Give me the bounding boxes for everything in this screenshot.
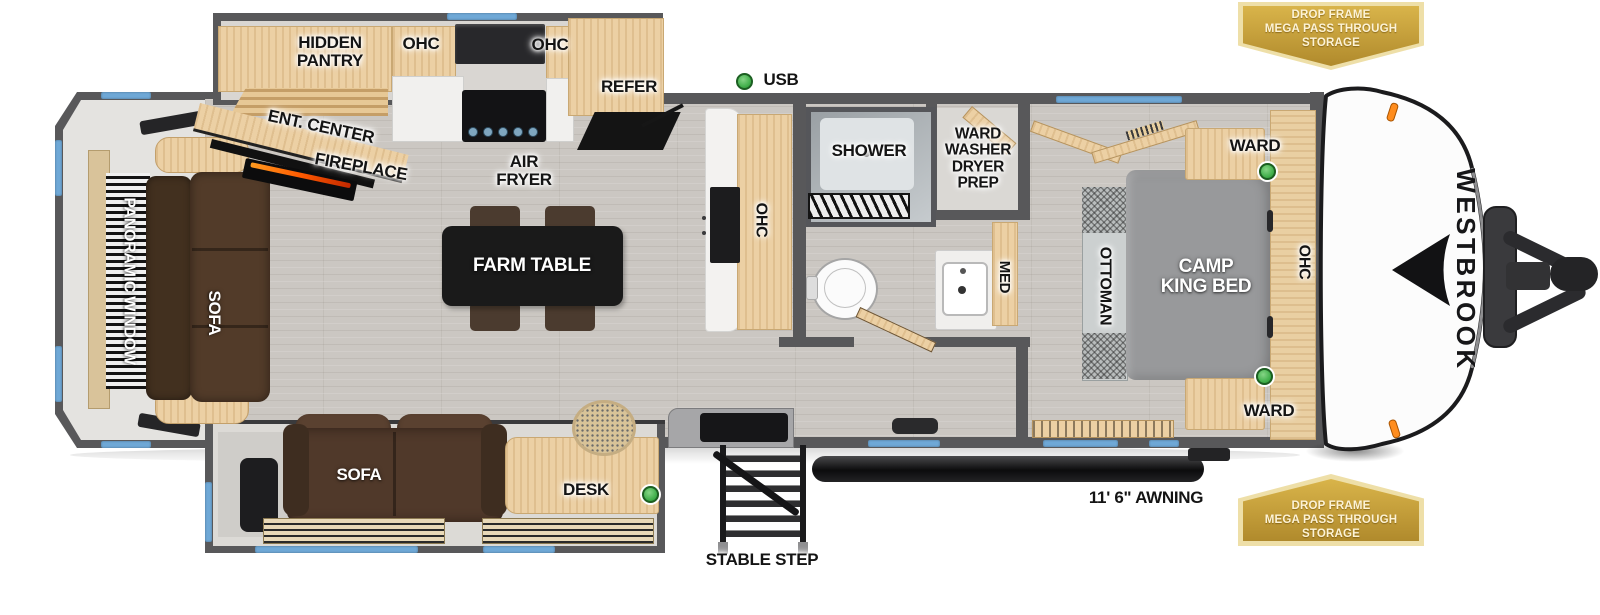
ward-washer-label: WARDWASHER DRYERPREP [945,126,1011,191]
slide-sofa-arm-left [283,424,309,516]
rear-sofa-seat [190,172,270,402]
kitchen-slideout-window [447,13,517,20]
stable-step-rail-right [800,445,806,545]
ohc-mid-label: OHC [532,36,569,54]
rear-sofa-seam-1 [192,248,268,251]
island-appliance [710,187,740,263]
stove-burner-5 [528,127,538,137]
rear-sofa-label: SOFA [205,290,223,335]
stove-burner-4 [513,127,523,137]
stable-step-rung [726,530,800,537]
slide-rail-right [482,518,654,544]
stove-burner-3 [498,127,508,137]
entry-mat [892,418,938,434]
desk-label: DESK [563,481,609,499]
ottoman-cushion-bottom [1082,333,1126,379]
farm-table-label: FARM TABLE [473,256,591,276]
usb-indicator-kitchen [736,73,753,90]
bedroom-ohc-label: OHC [1295,245,1312,280]
hitch-crossbar [1506,262,1550,290]
island-handle [702,231,706,235]
toilet-hinge [806,276,818,300]
sink-drain [958,286,966,294]
air-fryer-label: AIRFRYER [496,153,552,189]
rear-sofa-seam-2 [192,325,268,328]
rv-floorplan: WESTBROOK DROP FRAMEMEGA PASS THROUGHSTO… [0,0,1600,615]
ward-top-label: WARD [1230,137,1281,155]
shower-threshold [808,193,910,219]
sofa-slideout-window-2 [483,546,555,553]
desk-chair [572,400,636,456]
bottom-window-3 [1149,440,1179,447]
ohc-handle [1267,210,1273,232]
front-cap: WESTBROOK [1290,78,1515,470]
refrigerator-cabinet [568,18,664,116]
stable-step-rung [726,455,800,462]
stable-step-label: STABLE STEP [706,551,819,569]
island-ohc-label: OHC [752,203,769,238]
bath-left-wall [793,100,806,347]
storage-badge-top: DROP FRAMEMEGA PASS THROUGHSTORAGE [1238,2,1424,70]
ohc-handle [1267,316,1273,338]
bath-bottom-wall-left [779,337,854,347]
stove-burner-2 [483,127,493,137]
bath-bottom-wall-right [924,337,1030,347]
pantry-shelves [230,88,388,116]
bedroom-wall-upper [1018,100,1030,215]
end-table-top [155,137,249,173]
top-wall [655,93,1317,104]
slide-rail-left [263,518,445,544]
awning-roll [812,456,1204,482]
awning-label: 11' 6" AWNING [1089,489,1203,507]
refer-label: REFER [601,78,657,96]
ottoman-label: OTTOMAN [1096,247,1113,326]
usb-indicator-ward-top [1259,163,1276,180]
bottom-window-2 [1043,440,1118,447]
bedroom-bench [1032,420,1174,438]
stable-step-rung [726,515,800,522]
camp-king-bed-label: CAMPKING BED [1161,257,1252,297]
shower-label: SHOWER [832,142,907,160]
bottom-window-1 [868,440,940,447]
storage-badge-bottom: DROP FRAMEMEGA PASS THROUGHSTORAGE [1238,474,1424,546]
sofa-slideout-window-1 [255,546,418,553]
usb-label: USB [764,71,799,89]
usb-indicator-ward-bottom [1256,368,1273,385]
bedroom-top-window [1056,96,1182,103]
rear-sofa-back [146,176,192,400]
panoramic-window-label: PANORAMIC WINDOW [120,197,137,364]
bedroom-wall-lower [1016,338,1028,448]
entry-step-well [700,413,788,442]
ohc-left-label: OHC [403,35,440,53]
rear-window-2 [55,346,62,402]
storage-badge-top-text: DROP FRAMEMEGA PASS THROUGHSTORAGE [1238,9,1424,50]
hitch-coupler [1550,257,1598,291]
sink-faucet [960,268,966,274]
sofa-slideout-window-side [205,482,212,542]
bath-underward-wall [926,210,1030,220]
stabilizer-jack [1188,448,1230,461]
counter-left [392,76,464,142]
stove-burner-1 [468,127,478,137]
ottoman-cushion-top [1082,187,1126,233]
usb-indicator-desk [642,486,659,503]
brand-logo-text: WESTBROOK [1451,168,1481,371]
rear-bottom-window [101,441,151,448]
dining-chair [545,302,595,331]
dining-chair [470,302,520,331]
slide-sofa-seam [393,432,396,516]
refrigerator-front [577,112,681,150]
hidden-pantry-label: HIDDENPANTRY [297,34,363,70]
ward-bottom-label: WARD [1244,402,1295,420]
island-handle [702,216,706,220]
storage-badge-bottom-text: DROP FRAMEMEGA PASS THROUGHSTORAGE [1238,500,1424,541]
rear-window-1 [55,140,62,196]
rear-top-window [101,92,151,99]
med-label: MED [996,261,1012,293]
toilet-seat [824,268,866,308]
slide-sofa-arm-right [481,424,507,516]
slide-sofa-label: SOFA [336,466,381,484]
